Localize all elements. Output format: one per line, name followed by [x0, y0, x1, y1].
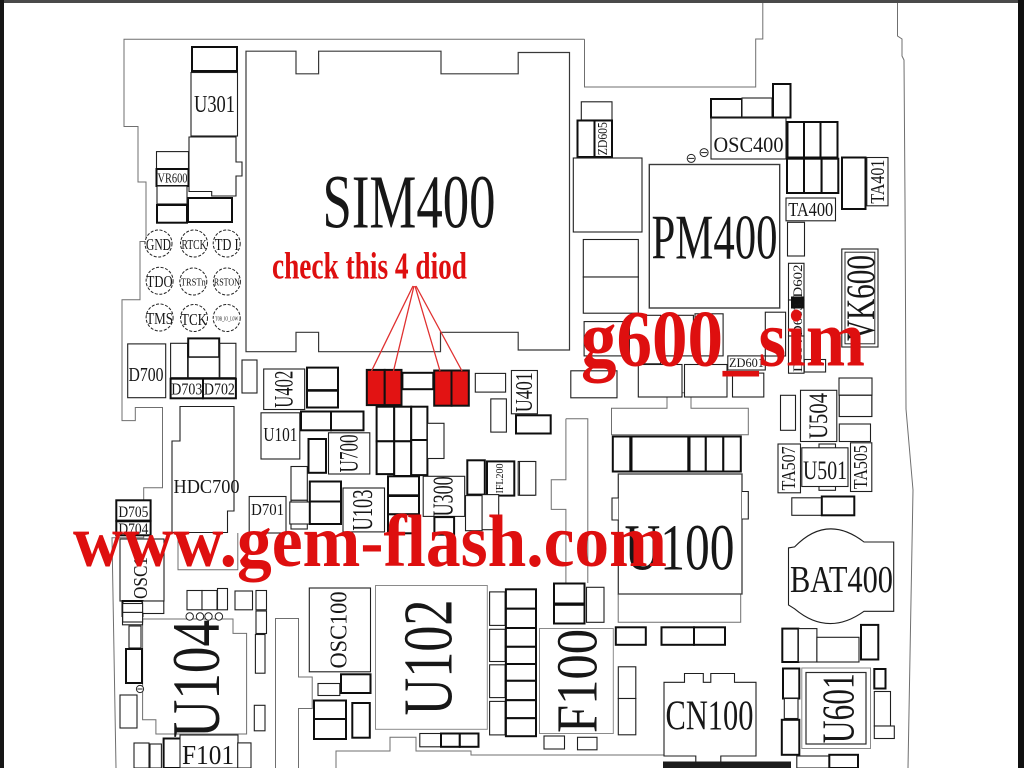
svg-text:D602: D602: [790, 265, 805, 298]
svg-text:OSC100: OSC100: [327, 592, 353, 669]
svg-text:TDO: TDO: [147, 272, 173, 291]
svg-text:U504: U504: [804, 393, 833, 439]
svg-text:U402: U402: [270, 371, 299, 408]
svg-text:D700: D700: [129, 364, 164, 386]
svg-text:F100: F100: [545, 629, 610, 733]
svg-text:IFL200: IFL200: [495, 464, 506, 494]
svg-text:TMS: TMS: [146, 309, 173, 328]
svg-text:GND: GND: [146, 235, 171, 254]
svg-text:U102: U102: [391, 600, 468, 716]
svg-text:T0B_IO_L0W: T0B_IO_L0W: [215, 316, 239, 323]
svg-text:U401: U401: [512, 372, 538, 412]
svg-text:TA401: TA401: [867, 160, 889, 204]
svg-text:U601: U601: [812, 673, 863, 743]
svg-text:D703: D703: [171, 380, 202, 399]
svg-text:D702: D702: [204, 380, 235, 399]
svg-text:CN100: CN100: [666, 694, 754, 740]
svg-text:HDC700: HDC700: [174, 476, 240, 498]
svg-text:PM400: PM400: [652, 203, 778, 273]
svg-text:BAT400: BAT400: [790, 559, 893, 601]
svg-text:TA505: TA505: [850, 445, 872, 489]
svg-text:www.gem-flash.com: www.gem-flash.com: [73, 501, 667, 583]
svg-text:U104: U104: [158, 620, 234, 738]
svg-text:OSC400: OSC400: [714, 132, 784, 157]
svg-text:g600_sim: g600_sim: [581, 295, 865, 383]
svg-text:U501: U501: [803, 456, 847, 485]
svg-text:U101: U101: [263, 424, 297, 446]
svg-text:U700: U700: [335, 434, 364, 472]
svg-text:F101: F101: [182, 740, 234, 768]
svg-text:check this 4 diod: check this 4 diod: [272, 246, 467, 288]
svg-text:RSTON: RSTON: [214, 277, 240, 289]
svg-text:VR600: VR600: [158, 172, 188, 187]
svg-text:U301: U301: [194, 92, 235, 118]
svg-text:RTCK: RTCK: [182, 238, 207, 253]
svg-text:ZD605: ZD605: [596, 122, 611, 155]
svg-text:SIM400: SIM400: [323, 161, 496, 245]
svg-text:TD I: TD I: [215, 235, 239, 254]
svg-text:TCK: TCK: [181, 310, 208, 329]
svg-text:TA507: TA507: [778, 446, 800, 490]
svg-text:TRSTn: TRSTn: [181, 277, 206, 289]
svg-text:TA400: TA400: [788, 199, 833, 221]
